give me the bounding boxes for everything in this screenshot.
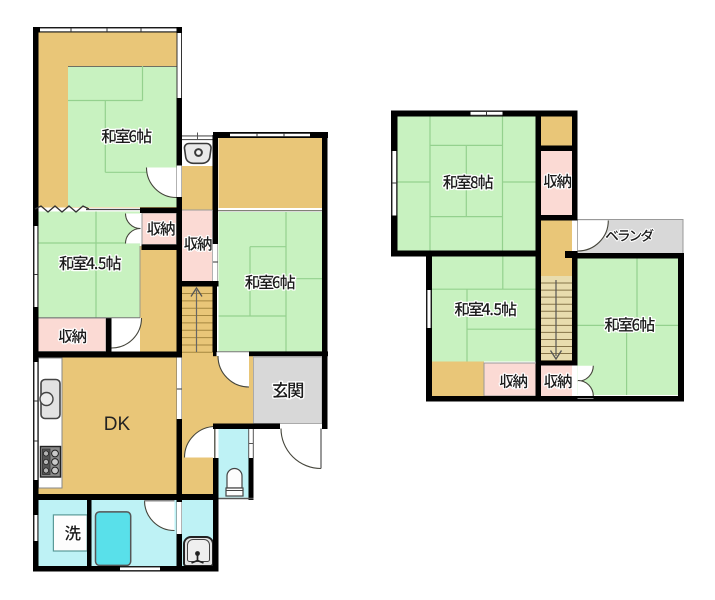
svg-text:DK: DK (104, 414, 131, 435)
